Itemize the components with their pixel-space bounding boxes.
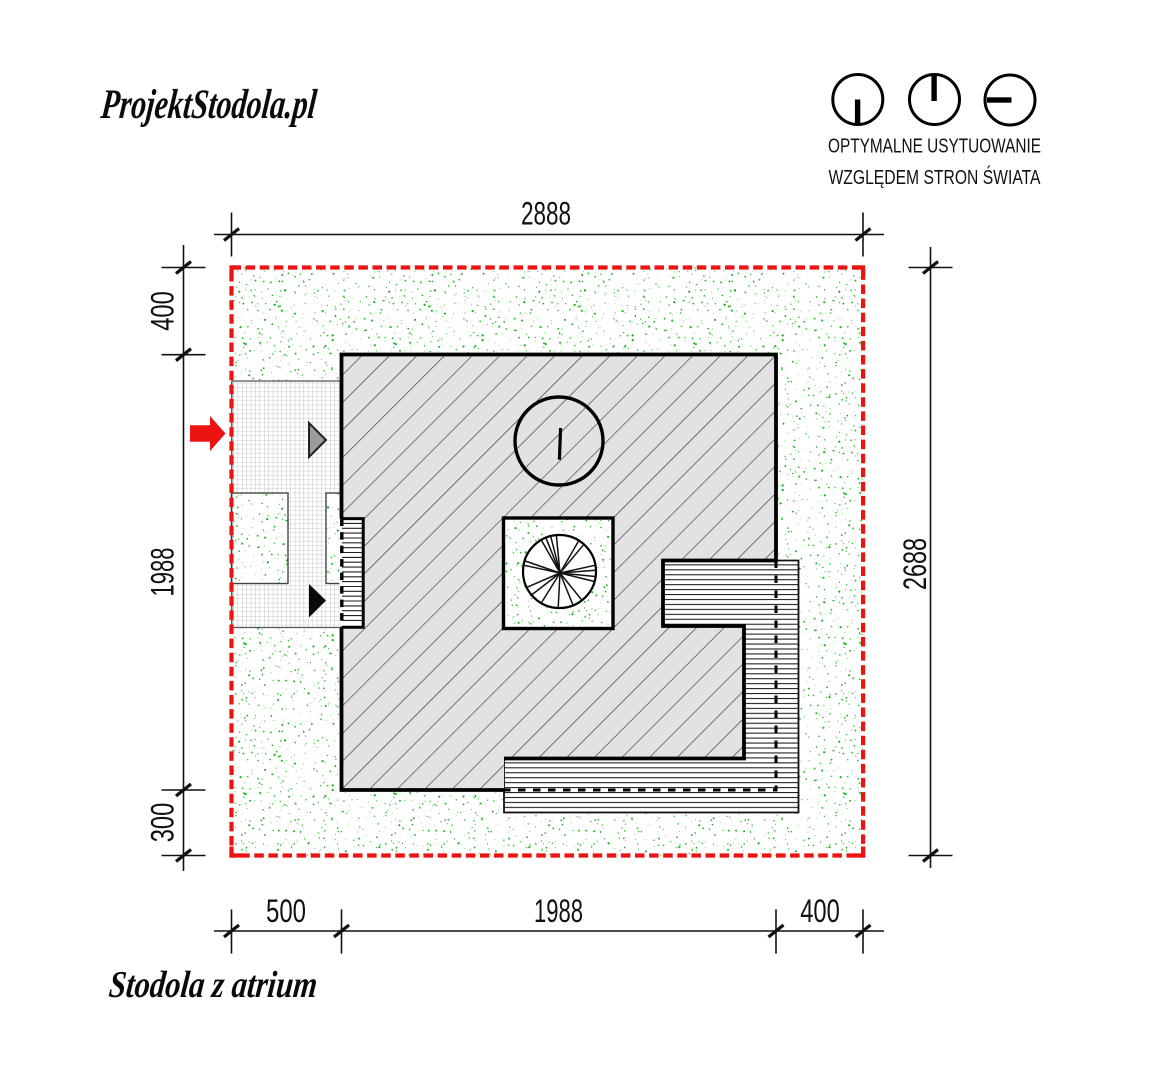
- svg-text:1988: 1988: [534, 893, 583, 929]
- svg-text:500: 500: [266, 893, 306, 929]
- svg-text:300: 300: [145, 803, 181, 843]
- svg-text:2888: 2888: [521, 196, 571, 232]
- svg-text:ProjektStodola.pl: ProjektStodola.pl: [98, 81, 319, 128]
- svg-text:2688: 2688: [897, 538, 933, 590]
- svg-text:OPTYMALNE USYTUOWANIE: OPTYMALNE USYTUOWANIE: [828, 136, 1041, 158]
- svg-text:Stodola z atrium: Stodola z atrium: [107, 964, 319, 1006]
- svg-text:400: 400: [800, 893, 840, 929]
- svg-text:WZGLĘDEM STRON ŚWIATA: WZGLĘDEM STRON ŚWIATA: [829, 165, 1042, 189]
- svg-text:400: 400: [145, 291, 181, 331]
- svg-text:1988: 1988: [145, 548, 181, 597]
